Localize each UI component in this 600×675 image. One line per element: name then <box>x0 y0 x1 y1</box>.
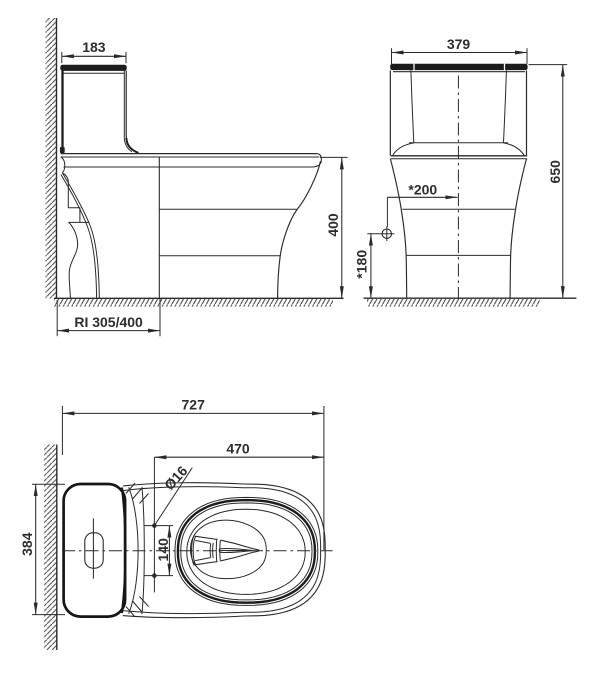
svg-text:384: 384 <box>19 532 35 556</box>
svg-text:RI 305/400: RI 305/400 <box>74 314 143 330</box>
svg-text:470: 470 <box>226 441 250 457</box>
svg-text:379: 379 <box>447 36 471 52</box>
svg-text:400: 400 <box>325 213 341 237</box>
svg-text:183: 183 <box>82 39 106 55</box>
svg-text:727: 727 <box>182 396 206 412</box>
svg-text:*180: *180 <box>353 250 369 279</box>
svg-text:650: 650 <box>547 160 563 184</box>
svg-text:*200: *200 <box>408 182 437 198</box>
svg-text:140: 140 <box>155 538 171 562</box>
